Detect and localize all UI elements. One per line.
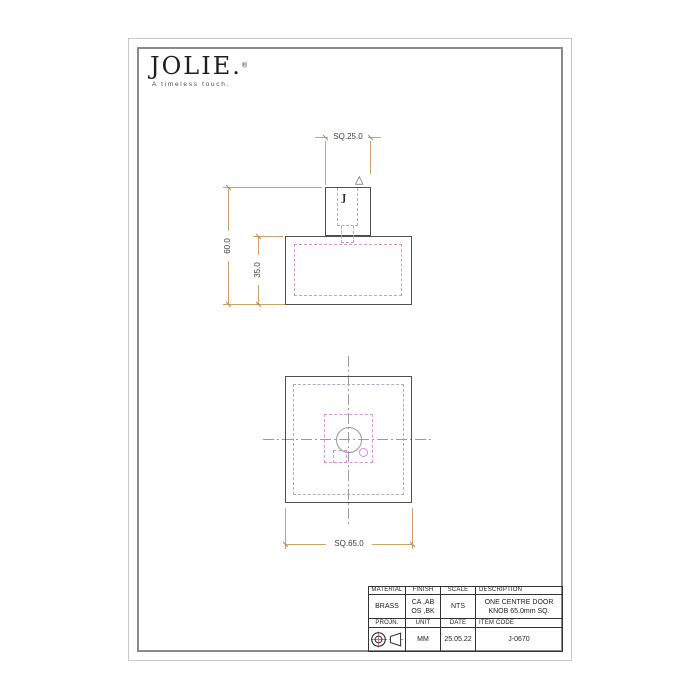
dim-label-sq25: SQ.25.0	[328, 132, 368, 142]
header-scale: SCALE	[441, 587, 476, 595]
front-view-stem-hidden-hole-lower	[341, 226, 354, 243]
registered-mark: ®	[242, 63, 247, 70]
value-item-code: J-0670	[476, 628, 562, 651]
dim-ext-bottom	[223, 304, 285, 305]
value-unit: MM	[406, 628, 441, 651]
dim-ext-sq25-left	[325, 141, 326, 185]
value-material: BRASS	[369, 595, 406, 619]
brand-logo: JOLIE.® A timeless touch.	[150, 52, 247, 88]
dim-label-60: 60.0	[223, 231, 233, 261]
dim-label-sq65: SQ.65.0	[326, 539, 372, 549]
dim-ext-60-top	[223, 187, 322, 188]
brand-name: JOLIE.	[150, 52, 242, 80]
surface-triangle-icon: △	[355, 175, 363, 186]
drawing-sheet: JOLIE.® A timeless touch. J △ SQ.25.0 60…	[0, 0, 700, 700]
front-view-base-hidden-cavity	[294, 244, 402, 296]
value-description: ONE CENTRE DOOR KNOB 65.0mm SQ.	[476, 595, 562, 619]
header-item-code: ITEM CODE	[476, 619, 562, 628]
header-material: MATERIAL	[369, 587, 406, 595]
brand-tagline: A timeless touch.	[152, 81, 247, 88]
knob-monogram: J	[342, 194, 346, 204]
plan-view-hidden-slot	[333, 450, 347, 463]
header-date: DATE	[441, 619, 476, 628]
plan-view-grub-screw-hole	[359, 448, 368, 457]
value-scale: NTS	[441, 595, 476, 619]
first-angle-projection-icon	[370, 630, 404, 649]
header-description: DESCRIPTION	[476, 587, 562, 595]
projection-symbol-cell	[369, 628, 406, 651]
front-view-stem-hidden-hole	[337, 188, 358, 226]
header-finish: FINISH	[406, 587, 441, 595]
dim-label-35: 35.0	[253, 255, 263, 285]
header-projection: PROJN.	[369, 619, 406, 628]
dim-ext-sq25-right	[370, 141, 371, 174]
title-block: MATERIAL FINISH SCALE DESCRIPTION BRASS …	[368, 586, 563, 652]
value-date: 25.05.22	[441, 628, 476, 651]
header-unit: UNIT	[406, 619, 441, 628]
value-finish: CA ,AB OS ,BK	[406, 595, 441, 619]
